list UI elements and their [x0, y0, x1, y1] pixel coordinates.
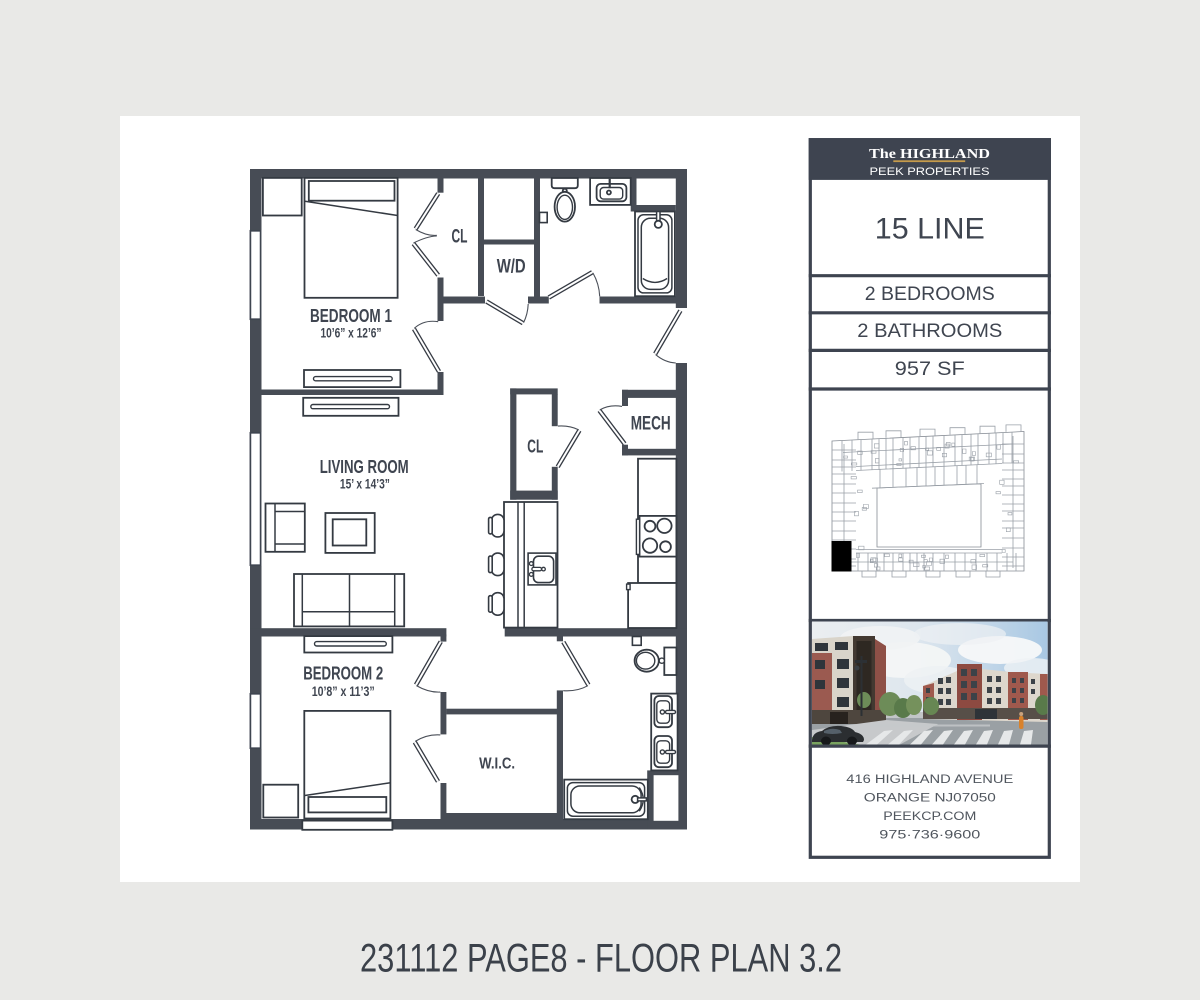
svg-text:416 HIGHLAND AVENUE: 416 HIGHLAND AVENUE	[846, 774, 1013, 786]
svg-text:2 BEDROOMS: 2 BEDROOMS	[865, 284, 995, 305]
svg-text:MECH: MECH	[631, 414, 671, 435]
svg-text:975·736·9600: 975·736·9600	[879, 830, 980, 842]
svg-text:W/D: W/D	[497, 256, 526, 277]
svg-text:BEDROOM 1: BEDROOM 1	[310, 306, 392, 326]
svg-text:W.I.C.: W.I.C.	[479, 755, 515, 772]
svg-text:2 BATHROOMS: 2 BATHROOMS	[857, 321, 1002, 342]
svg-text:15’ x 14’3”: 15’ x 14’3”	[340, 477, 390, 492]
svg-text:10’8” x 11’3”: 10’8” x 11’3”	[312, 684, 375, 699]
svg-text:15 LINE: 15 LINE	[875, 213, 985, 246]
svg-text:ORANGE NJ07050: ORANGE NJ07050	[864, 793, 996, 805]
svg-text:CL: CL	[452, 227, 468, 248]
svg-text:PEEK PROPERTIES: PEEK PROPERTIES	[870, 166, 991, 178]
svg-text:The HIGHLAND: The HIGHLAND	[869, 146, 990, 161]
svg-text:CL: CL	[527, 437, 543, 457]
svg-text:PEEKCP.COM: PEEKCP.COM	[883, 811, 976, 823]
svg-text:231112 PAGE8 - FLOOR PLAN 3.2: 231112 PAGE8 - FLOOR PLAN 3.2	[360, 937, 842, 981]
svg-text:LIVING ROOM: LIVING ROOM	[320, 457, 409, 477]
svg-text:10’6” x 12’6”: 10’6” x 12’6”	[321, 326, 382, 341]
svg-text:BEDROOM 2: BEDROOM 2	[303, 664, 383, 684]
svg-text:957 SF: 957 SF	[895, 359, 965, 380]
